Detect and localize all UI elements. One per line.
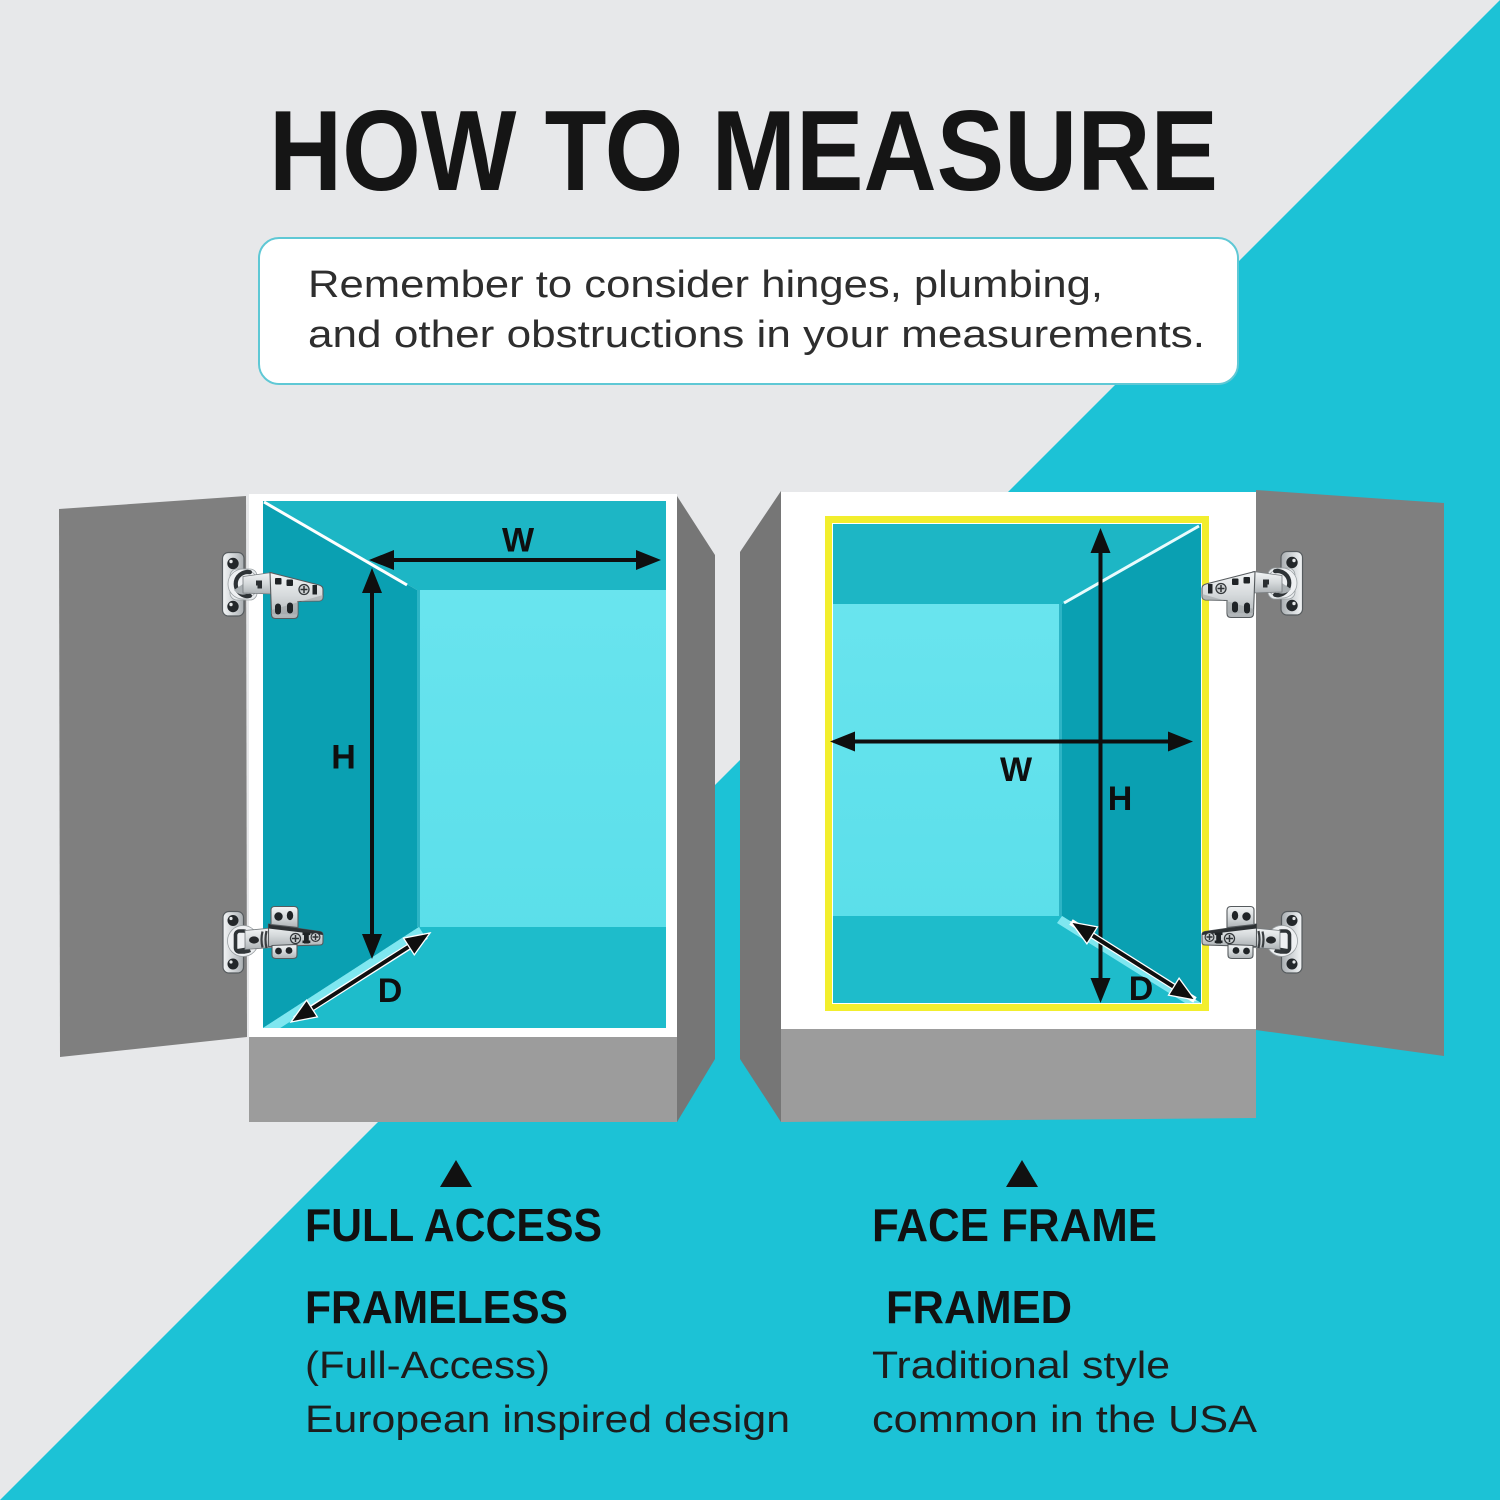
svg-text:H: H <box>331 739 356 777</box>
svg-text:HOW TO MEASURE: HOW TO MEASURE <box>269 88 1218 215</box>
svg-text:(Full-Access): (Full-Access) <box>305 1345 550 1387</box>
svg-text:Remember to consider hinges, p: Remember to consider hinges, plumbing, <box>308 264 1103 306</box>
svg-text:W: W <box>502 522 535 560</box>
svg-text:and other obstructions in your: and other obstructions in your measureme… <box>308 314 1205 356</box>
svg-text:FULL ACCESS: FULL ACCESS <box>305 1199 602 1251</box>
svg-text:common in the USA: common in the USA <box>872 1399 1258 1441</box>
svg-text:W: W <box>1000 751 1033 789</box>
svg-text:FRAMELESS: FRAMELESS <box>305 1281 568 1333</box>
svg-text:Traditional style: Traditional style <box>872 1345 1170 1387</box>
svg-text:FACE FRAME: FACE FRAME <box>872 1199 1157 1251</box>
svg-text:European inspired design: European inspired design <box>305 1399 790 1441</box>
svg-text:H: H <box>1108 780 1133 818</box>
svg-text:D: D <box>1129 970 1154 1008</box>
svg-text:FRAMED: FRAMED <box>886 1281 1072 1333</box>
svg-text:D: D <box>378 972 403 1010</box>
